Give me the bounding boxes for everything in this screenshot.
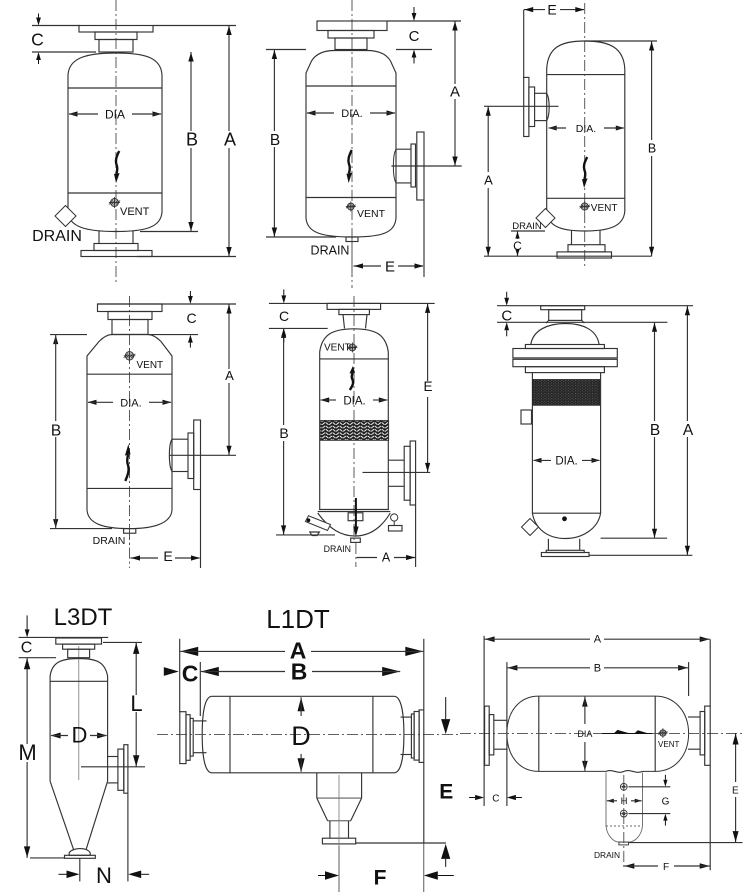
svg-text:B: B xyxy=(291,659,308,685)
svg-text:B: B xyxy=(270,132,280,149)
svg-text:C: C xyxy=(31,30,44,50)
svg-text:VENT: VENT xyxy=(658,740,679,749)
svg-text:DIA.: DIA. xyxy=(555,456,577,468)
svg-text:DIA.: DIA. xyxy=(120,398,141,410)
svg-text:VENT: VENT xyxy=(591,203,618,214)
svg-text:DIA.: DIA. xyxy=(343,396,365,408)
svg-text:B: B xyxy=(648,142,656,156)
svg-text:VENT: VENT xyxy=(357,208,386,220)
svg-text:G: G xyxy=(662,797,670,808)
svg-text:L: L xyxy=(130,691,142,716)
svg-text:E: E xyxy=(163,548,172,564)
svg-text:C: C xyxy=(182,661,199,687)
svg-text:C: C xyxy=(21,640,33,657)
svg-text:C: C xyxy=(186,310,196,326)
svg-text:D: D xyxy=(291,721,311,751)
svg-text:C: C xyxy=(513,239,522,253)
svg-text:M: M xyxy=(18,740,36,765)
svg-text:DRAIN: DRAIN xyxy=(93,535,126,547)
svg-text:VENT: VENT xyxy=(137,360,164,371)
svg-text:N: N xyxy=(96,863,112,888)
svg-text:E: E xyxy=(385,259,395,276)
svg-text:A: A xyxy=(225,368,234,383)
svg-text:C: C xyxy=(501,308,512,325)
svg-text:A: A xyxy=(382,551,391,565)
svg-text:B: B xyxy=(650,422,660,439)
svg-text:L3DT: L3DT xyxy=(54,604,113,631)
svg-text:E: E xyxy=(547,2,556,18)
svg-text:DRAIN: DRAIN xyxy=(594,850,620,860)
svg-text:E: E xyxy=(732,786,739,797)
svg-text:E: E xyxy=(423,379,432,394)
svg-text:C: C xyxy=(279,308,289,324)
svg-text:A: A xyxy=(683,422,694,439)
svg-text:A: A xyxy=(484,173,493,188)
svg-text:DIA.: DIA. xyxy=(341,108,362,120)
svg-text:DRAIN: DRAIN xyxy=(311,244,350,258)
svg-text:VENT: VENT xyxy=(324,343,351,354)
svg-text:C: C xyxy=(409,28,420,45)
svg-text:E: E xyxy=(439,781,453,804)
svg-text:B: B xyxy=(594,662,601,674)
svg-text:DIA: DIA xyxy=(105,108,125,122)
svg-text:A: A xyxy=(594,634,602,646)
svg-text:F: F xyxy=(374,867,387,890)
svg-text:B: B xyxy=(51,423,61,440)
svg-text:B: B xyxy=(186,130,198,150)
svg-text:L1DT: L1DT xyxy=(266,604,330,634)
svg-text:DIA: DIA xyxy=(577,729,592,739)
svg-text:B: B xyxy=(279,425,288,441)
svg-text:D: D xyxy=(72,723,88,748)
svg-text:H: H xyxy=(621,796,628,807)
svg-text:DIA.: DIA. xyxy=(576,123,596,135)
svg-text:F: F xyxy=(663,862,669,873)
svg-text:VENT: VENT xyxy=(120,206,150,218)
svg-text:A: A xyxy=(450,84,460,101)
svg-text:DRAIN: DRAIN xyxy=(32,228,82,245)
svg-text:A: A xyxy=(224,130,236,150)
svg-text:DRAIN: DRAIN xyxy=(324,544,351,554)
svg-text:C: C xyxy=(492,793,499,804)
svg-text:DRAIN: DRAIN xyxy=(512,221,542,232)
